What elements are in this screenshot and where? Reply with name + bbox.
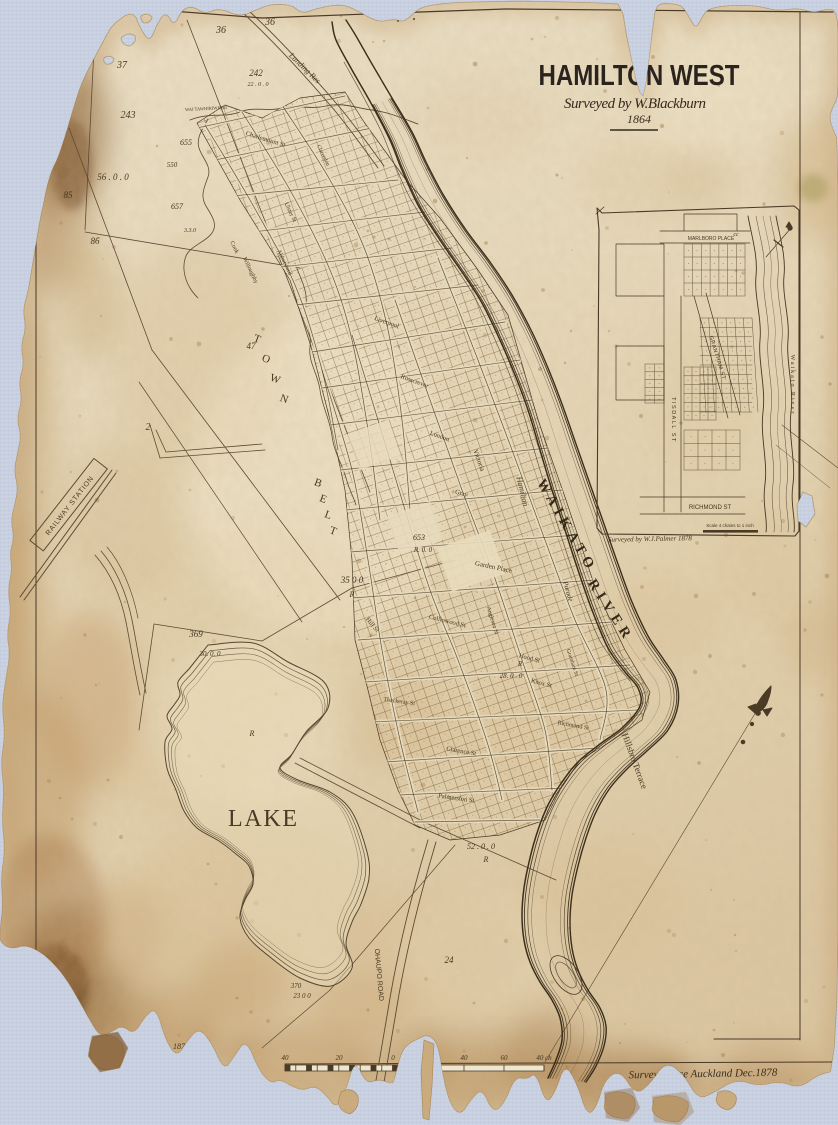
svg-text:LAKE: LAKE [228,806,302,832]
svg-text:20: 20 [336,1054,344,1062]
svg-text:Surveyed by W.J.Palmer 1878: Surveyed by W.J.Palmer 1878 [608,534,693,543]
svg-text:40: 40 [282,1054,290,1062]
svg-text:24: 24 [445,955,455,965]
svg-text:28. 0 . 0: 28. 0 . 0 [500,672,523,680]
svg-text:2: 2 [146,422,151,433]
svg-text:52 . 0 . 0: 52 . 0 . 0 [467,842,495,851]
svg-text:653: 653 [413,533,425,542]
svg-text:TISDALL ST: TISDALL ST [670,397,676,443]
svg-text:3.3.0: 3.3.0 [183,228,196,234]
svg-text:23 0 0: 23 0 0 [293,992,311,1000]
svg-text:R: R [483,855,489,864]
svg-text:RICHMOND ST: RICHMOND ST [689,505,732,511]
svg-text:47: 47 [247,341,257,351]
svg-text:242: 242 [249,68,263,78]
svg-text:657: 657 [171,202,184,211]
svg-text:R: R [517,660,523,668]
svg-text:MARLBORO PLACE: MARLBORO PLACE [688,236,735,242]
svg-text:1864: 1864 [627,112,651,126]
svg-text:369: 369 [188,629,203,639]
svg-text:22 . 0 . 0: 22 . 0 . 0 [248,82,269,88]
svg-text:Scale 4 chains to 1 inch: Scale 4 chains to 1 inch [706,523,754,528]
svg-text:37: 37 [116,60,128,71]
svg-text:85: 85 [64,190,74,200]
svg-text:R. 0. 0: R. 0. 0 [413,546,433,554]
svg-text:40 ch: 40 ch [536,1054,552,1062]
svg-text:655: 655 [180,138,192,147]
svg-text:56 . 0 . 0: 56 . 0 . 0 [97,172,129,182]
svg-text:40: 40 [461,1054,469,1062]
svg-text:370: 370 [290,982,302,990]
svg-text:35 0 0: 35 0 0 [340,575,364,585]
svg-text:550: 550 [167,161,178,169]
svg-text:60: 60 [501,1054,509,1062]
svg-text:36: 36 [215,25,226,36]
svg-text:86: 86 [91,236,101,246]
svg-text:30. 0. 0: 30. 0. 0 [199,650,222,658]
svg-text:R: R [349,590,355,599]
svg-text:0: 0 [391,1054,395,1062]
svg-text:36: 36 [264,17,275,28]
svg-text:243: 243 [121,110,136,121]
svg-text:Surveyed by W.Blackburn: Surveyed by W.Blackburn [564,96,706,112]
svg-text:Waikato River: Waikato River [789,355,795,416]
svg-text:R: R [249,729,255,738]
